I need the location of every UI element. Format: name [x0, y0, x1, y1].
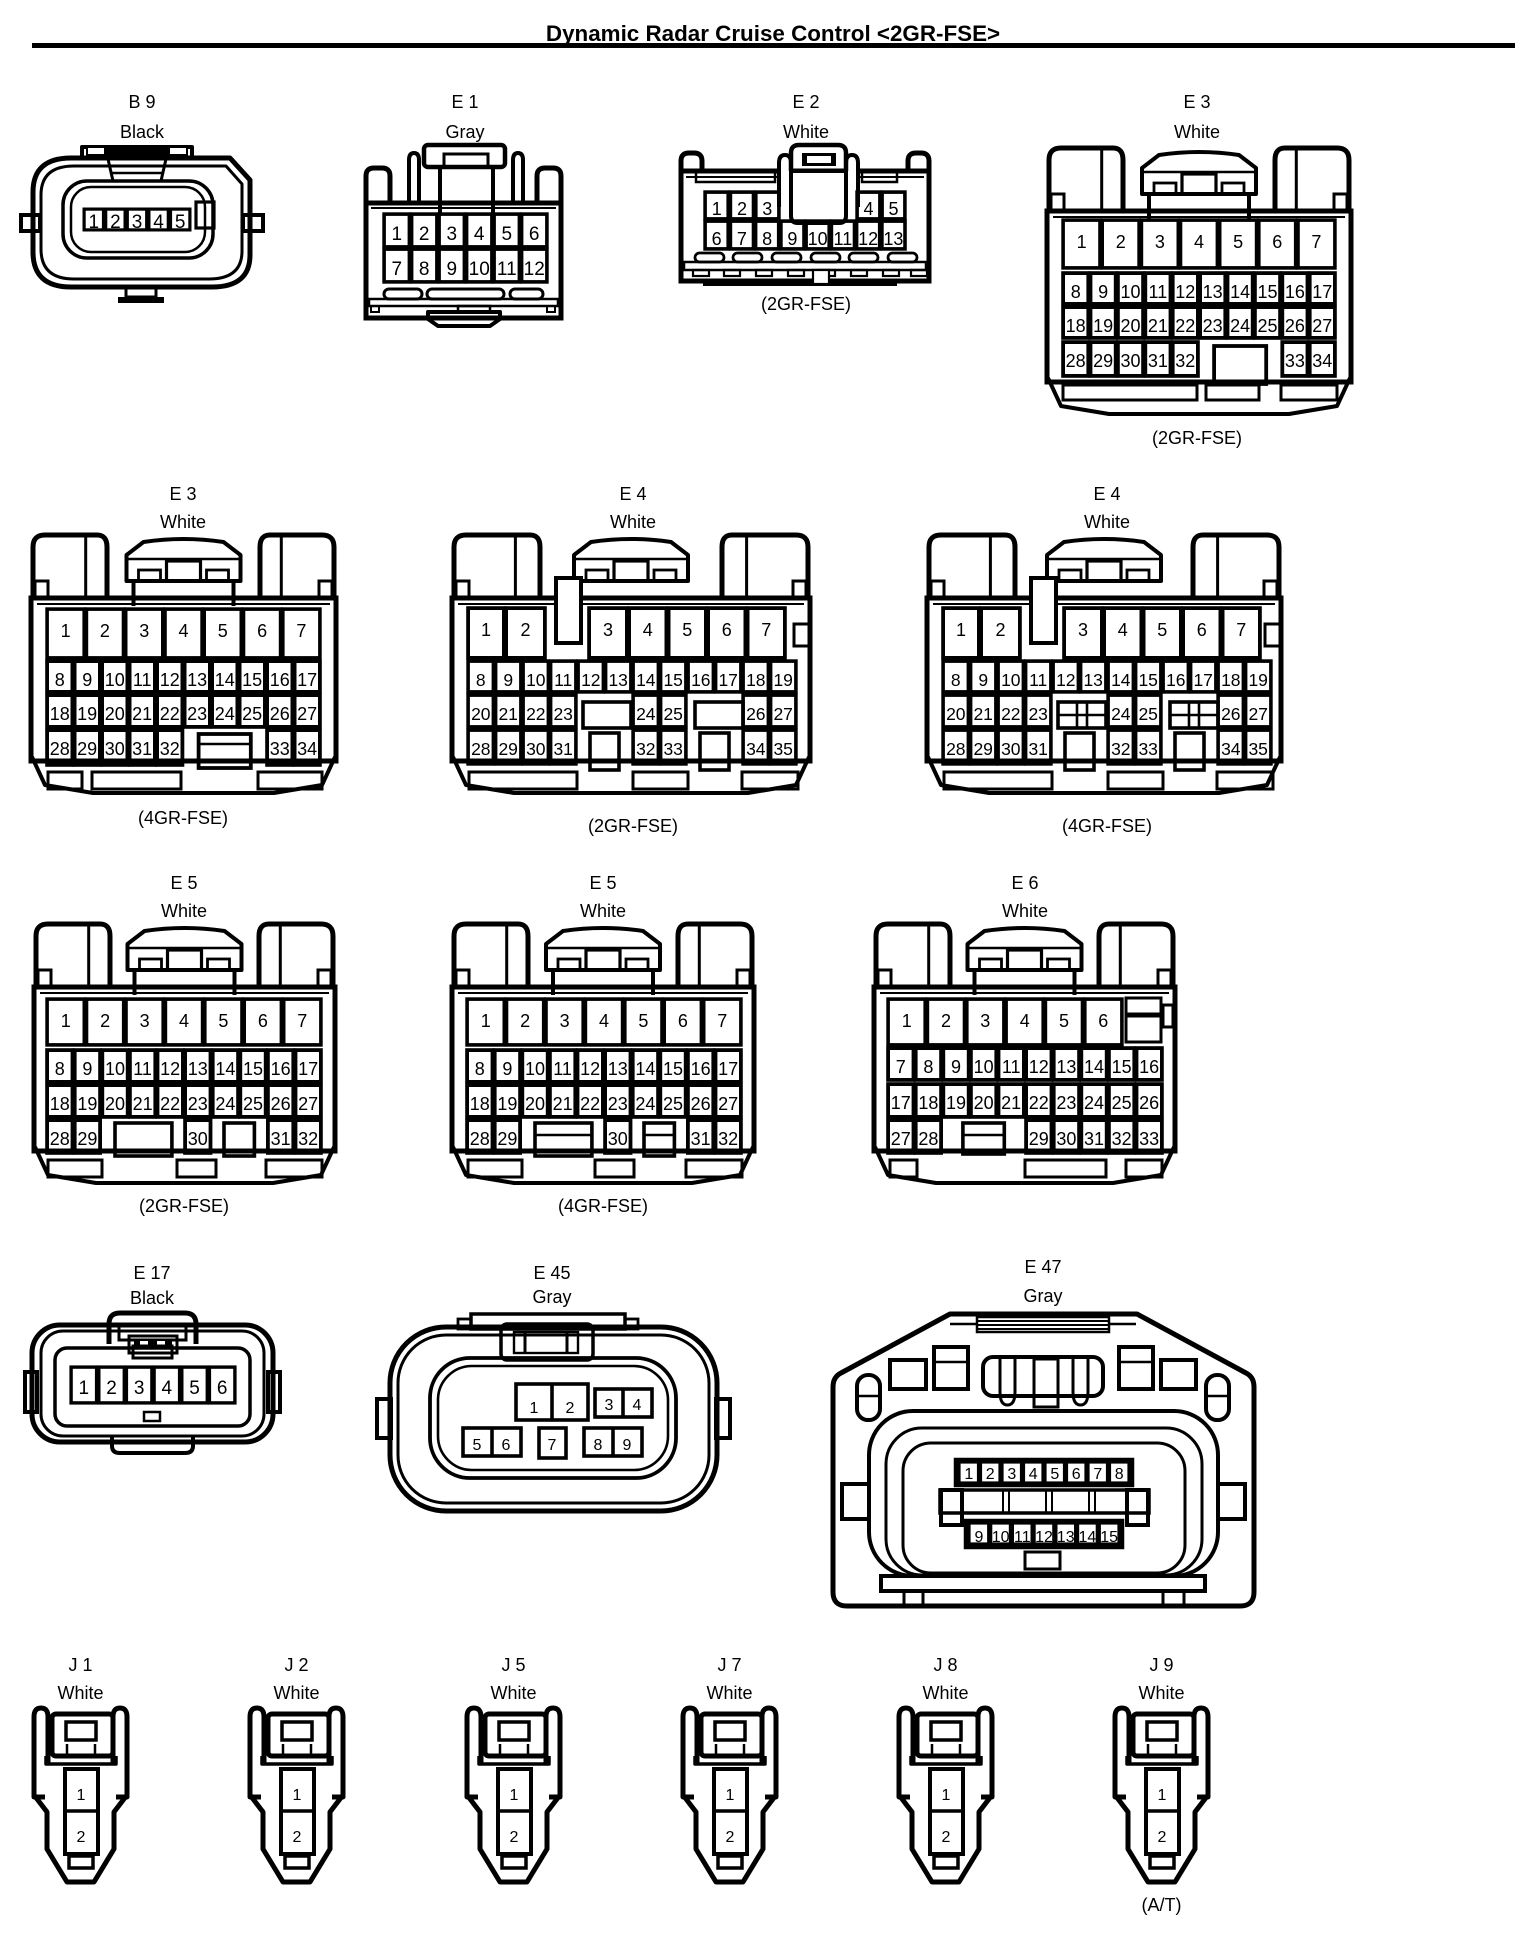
svg-text:12: 12: [858, 229, 878, 249]
svg-text:2: 2: [995, 620, 1005, 640]
svg-text:22: 22: [580, 1094, 600, 1114]
svg-text:Black: Black: [130, 1288, 175, 1308]
svg-text:32: 32: [160, 739, 180, 759]
svg-text:7: 7: [1093, 1466, 1102, 1483]
svg-text:8: 8: [419, 259, 430, 280]
svg-text:3: 3: [140, 1011, 150, 1031]
svg-text:30: 30: [1056, 1129, 1076, 1149]
svg-text:29: 29: [1093, 351, 1113, 371]
svg-text:White: White: [706, 1683, 752, 1703]
svg-text:33: 33: [1138, 739, 1157, 759]
svg-text:12: 12: [160, 670, 180, 690]
svg-text:13: 13: [187, 670, 207, 690]
svg-text:22: 22: [160, 704, 180, 724]
svg-text:1: 1: [942, 1787, 951, 1804]
svg-text:1: 1: [293, 1787, 302, 1804]
svg-text:J 8: J 8: [933, 1655, 957, 1675]
svg-text:4: 4: [863, 199, 873, 219]
svg-text:21: 21: [1148, 316, 1168, 336]
svg-text:E 4: E 4: [1093, 484, 1120, 504]
svg-text:White: White: [160, 512, 206, 532]
svg-text:White: White: [580, 901, 626, 921]
svg-text:10: 10: [469, 259, 490, 280]
svg-text:21: 21: [133, 1094, 153, 1114]
svg-text:18: 18: [470, 1094, 490, 1114]
svg-text:16: 16: [691, 670, 710, 690]
svg-text:21: 21: [132, 704, 152, 724]
svg-text:2: 2: [520, 620, 530, 640]
svg-text:(4GR-FSE): (4GR-FSE): [558, 1196, 648, 1216]
svg-text:23: 23: [188, 1094, 208, 1114]
svg-text:19: 19: [946, 1093, 966, 1113]
svg-text:8: 8: [594, 1437, 603, 1454]
svg-text:14: 14: [1084, 1057, 1104, 1077]
svg-text:7: 7: [297, 1011, 307, 1031]
svg-text:1: 1: [712, 199, 722, 219]
svg-text:5: 5: [1233, 232, 1243, 252]
svg-text:25: 25: [1257, 316, 1277, 336]
svg-text:35: 35: [773, 739, 792, 759]
svg-text:5: 5: [638, 1011, 648, 1031]
svg-text:7: 7: [296, 621, 306, 641]
svg-text:28: 28: [946, 739, 965, 759]
svg-text:24: 24: [1084, 1093, 1104, 1113]
svg-text:9: 9: [974, 1529, 983, 1546]
svg-text:6: 6: [217, 1378, 228, 1399]
svg-text:14: 14: [635, 1059, 655, 1079]
svg-text:31: 31: [691, 1129, 711, 1149]
svg-text:30: 30: [1120, 351, 1140, 371]
svg-text:30: 30: [1001, 739, 1021, 759]
svg-text:16: 16: [1139, 1057, 1159, 1077]
svg-text:10: 10: [1001, 670, 1021, 690]
svg-text:30: 30: [608, 1129, 628, 1149]
svg-text:10: 10: [526, 670, 546, 690]
svg-text:30: 30: [188, 1129, 208, 1149]
svg-text:29: 29: [1029, 1129, 1049, 1149]
svg-text:13: 13: [608, 1059, 628, 1079]
svg-text:E 5: E 5: [170, 873, 197, 893]
svg-text:17: 17: [891, 1093, 911, 1113]
svg-text:29: 29: [497, 1129, 517, 1149]
svg-text:12: 12: [1175, 282, 1195, 302]
svg-text:7: 7: [392, 259, 403, 280]
svg-text:6: 6: [712, 229, 722, 249]
svg-text:5: 5: [682, 620, 692, 640]
svg-text:34: 34: [1312, 351, 1332, 371]
svg-text:28: 28: [471, 739, 490, 759]
svg-text:12: 12: [581, 670, 600, 690]
svg-text:2: 2: [726, 1829, 735, 1846]
svg-text:22: 22: [526, 704, 545, 724]
svg-text:1: 1: [510, 1787, 519, 1804]
svg-text:3: 3: [762, 199, 772, 219]
svg-text:24: 24: [635, 1094, 655, 1114]
svg-text:(2GR-FSE): (2GR-FSE): [1152, 428, 1242, 448]
svg-text:4: 4: [599, 1011, 609, 1031]
svg-text:(2GR-FSE): (2GR-FSE): [588, 816, 678, 836]
svg-text:2: 2: [510, 1829, 519, 1846]
svg-text:5: 5: [502, 224, 513, 245]
svg-text:White: White: [610, 512, 656, 532]
svg-text:29: 29: [77, 1129, 97, 1149]
svg-text:25: 25: [663, 1094, 683, 1114]
svg-text:E 3: E 3: [1183, 92, 1210, 112]
svg-text:3: 3: [980, 1011, 990, 1031]
svg-text:14: 14: [1079, 1529, 1097, 1546]
svg-text:2: 2: [110, 212, 121, 233]
svg-text:2: 2: [941, 1011, 951, 1031]
svg-text:14: 14: [1230, 282, 1250, 302]
svg-text:9: 9: [978, 670, 988, 690]
svg-text:4: 4: [1029, 1466, 1038, 1483]
svg-text:6: 6: [502, 1437, 511, 1454]
svg-text:White: White: [490, 1683, 536, 1703]
svg-text:14: 14: [215, 1059, 235, 1079]
svg-text:1: 1: [392, 224, 403, 245]
svg-text:1: 1: [964, 1466, 973, 1483]
svg-text:B 9: B 9: [128, 92, 155, 112]
svg-text:14: 14: [1111, 670, 1131, 690]
svg-text:23: 23: [187, 704, 207, 724]
svg-text:32: 32: [1175, 351, 1195, 371]
svg-text:35: 35: [1248, 739, 1267, 759]
svg-text:1: 1: [61, 621, 71, 641]
svg-text:1: 1: [61, 1011, 71, 1031]
svg-text:32: 32: [1112, 1129, 1132, 1149]
svg-text:4: 4: [633, 1397, 642, 1414]
svg-text:11: 11: [133, 1059, 152, 1079]
svg-text:1: 1: [726, 1787, 735, 1804]
svg-text:23: 23: [553, 704, 572, 724]
svg-text:11: 11: [1002, 1057, 1021, 1077]
svg-text:23: 23: [1028, 704, 1047, 724]
svg-text:12: 12: [1056, 670, 1075, 690]
svg-text:5: 5: [218, 621, 228, 641]
svg-text:White: White: [783, 122, 829, 142]
svg-text:9: 9: [503, 670, 513, 690]
svg-text:34: 34: [297, 739, 317, 759]
svg-text:White: White: [57, 1683, 103, 1703]
svg-text:22: 22: [160, 1094, 180, 1114]
svg-text:11: 11: [1149, 282, 1168, 302]
svg-text:E 3: E 3: [169, 484, 196, 504]
svg-text:19: 19: [77, 704, 97, 724]
svg-text:15: 15: [1138, 670, 1157, 690]
svg-text:J 5: J 5: [501, 1655, 525, 1675]
svg-text:8: 8: [951, 670, 961, 690]
svg-text:11: 11: [553, 1059, 572, 1079]
svg-text:9: 9: [951, 1057, 961, 1077]
svg-text:29: 29: [77, 739, 97, 759]
svg-text:31: 31: [553, 739, 572, 759]
svg-text:29: 29: [973, 739, 992, 759]
svg-text:22: 22: [1001, 704, 1020, 724]
svg-text:3: 3: [139, 621, 149, 641]
svg-text:3: 3: [605, 1397, 614, 1414]
svg-text:27: 27: [298, 1094, 318, 1114]
svg-text:7: 7: [896, 1057, 906, 1077]
svg-text:3: 3: [603, 620, 613, 640]
svg-text:20: 20: [105, 704, 125, 724]
svg-text:Gray: Gray: [445, 122, 484, 142]
svg-text:7: 7: [717, 1011, 727, 1031]
svg-text:31: 31: [1148, 351, 1168, 371]
svg-text:Gray: Gray: [532, 1287, 571, 1307]
svg-text:17: 17: [1312, 282, 1332, 302]
svg-text:14: 14: [636, 670, 656, 690]
svg-text:6: 6: [258, 1011, 268, 1031]
svg-text:4: 4: [179, 1011, 189, 1031]
svg-text:23: 23: [1056, 1093, 1076, 1113]
svg-text:8: 8: [762, 229, 772, 249]
svg-text:17: 17: [298, 1059, 318, 1079]
svg-text:26: 26: [1139, 1093, 1159, 1113]
svg-text:25: 25: [1112, 1093, 1132, 1113]
svg-text:16: 16: [1285, 282, 1305, 302]
svg-text:26: 26: [691, 1094, 711, 1114]
svg-text:24: 24: [1111, 704, 1131, 724]
svg-text:10: 10: [808, 229, 828, 249]
svg-text:10: 10: [974, 1057, 994, 1077]
svg-text:11: 11: [554, 670, 572, 690]
svg-text:10: 10: [105, 1059, 125, 1079]
svg-text:30: 30: [105, 739, 125, 759]
svg-text:6: 6: [678, 1011, 688, 1031]
svg-text:15: 15: [243, 1059, 263, 1079]
svg-text:8: 8: [475, 1059, 485, 1079]
svg-text:19: 19: [77, 1094, 97, 1114]
svg-text:1: 1: [77, 1787, 86, 1804]
svg-text:14: 14: [215, 670, 235, 690]
svg-text:33: 33: [270, 739, 290, 759]
svg-text:12: 12: [160, 1059, 180, 1079]
svg-text:12: 12: [524, 259, 545, 280]
svg-text:12: 12: [1035, 1529, 1053, 1546]
svg-text:33: 33: [663, 739, 682, 759]
svg-text:19: 19: [773, 670, 792, 690]
svg-text:(4GR-FSE): (4GR-FSE): [1062, 816, 1152, 836]
svg-text:20: 20: [946, 704, 966, 724]
svg-text:33: 33: [1139, 1129, 1159, 1149]
svg-text:20: 20: [525, 1094, 545, 1114]
svg-text:2: 2: [566, 1400, 575, 1417]
svg-text:4: 4: [1194, 232, 1204, 252]
svg-text:1: 1: [89, 212, 100, 233]
svg-text:22: 22: [1029, 1093, 1049, 1113]
svg-text:32: 32: [298, 1129, 318, 1149]
svg-text:1: 1: [1077, 232, 1087, 252]
svg-text:10: 10: [992, 1529, 1010, 1546]
svg-text:1: 1: [481, 620, 491, 640]
svg-text:28: 28: [1066, 351, 1086, 371]
svg-text:White: White: [922, 1683, 968, 1703]
svg-text:2: 2: [100, 621, 110, 641]
svg-text:25: 25: [242, 704, 262, 724]
svg-text:10: 10: [1120, 282, 1140, 302]
svg-text:3: 3: [1155, 232, 1165, 252]
svg-text:4: 4: [178, 621, 188, 641]
svg-text:7: 7: [761, 620, 771, 640]
svg-text:1: 1: [956, 620, 966, 640]
svg-text:20: 20: [105, 1094, 125, 1114]
svg-text:3: 3: [1078, 620, 1088, 640]
svg-text:34: 34: [1221, 739, 1241, 759]
svg-text:4: 4: [1020, 1011, 1030, 1031]
svg-text:2: 2: [293, 1829, 302, 1846]
svg-text:13: 13: [1057, 1529, 1075, 1546]
svg-text:5: 5: [1157, 620, 1167, 640]
svg-text:10: 10: [525, 1059, 545, 1079]
svg-text:8: 8: [1115, 1466, 1124, 1483]
svg-text:10: 10: [105, 670, 125, 690]
svg-text:Gray: Gray: [1023, 1286, 1062, 1306]
svg-text:4: 4: [162, 1378, 173, 1399]
svg-text:24: 24: [636, 704, 656, 724]
svg-text:2: 2: [77, 1829, 86, 1846]
svg-text:13: 13: [1203, 282, 1223, 302]
svg-text:3: 3: [447, 224, 458, 245]
svg-text:28: 28: [918, 1129, 938, 1149]
svg-text:6: 6: [1272, 232, 1282, 252]
svg-text:28: 28: [470, 1129, 490, 1149]
svg-text:13: 13: [608, 670, 627, 690]
svg-text:11: 11: [1029, 670, 1047, 690]
svg-text:21: 21: [973, 704, 992, 724]
svg-text:5: 5: [189, 1378, 200, 1399]
svg-text:White: White: [1138, 1683, 1184, 1703]
svg-text:27: 27: [297, 704, 317, 724]
svg-text:5: 5: [1059, 1011, 1069, 1031]
svg-text:8: 8: [923, 1057, 933, 1077]
svg-text:8: 8: [1071, 282, 1081, 302]
svg-text:Black: Black: [120, 122, 165, 142]
svg-text:1: 1: [902, 1011, 912, 1031]
svg-text:11: 11: [497, 259, 517, 280]
svg-text:E 6: E 6: [1011, 873, 1038, 893]
svg-text:E 17: E 17: [133, 1263, 170, 1283]
svg-text:7: 7: [1236, 620, 1246, 640]
svg-text:13: 13: [1083, 670, 1102, 690]
svg-text:26: 26: [271, 1094, 291, 1114]
svg-text:8: 8: [476, 670, 486, 690]
svg-text:3: 3: [1007, 1466, 1016, 1483]
svg-text:31: 31: [1084, 1129, 1104, 1149]
svg-text:16: 16: [1166, 670, 1185, 690]
svg-text:2: 2: [106, 1378, 117, 1399]
svg-text:E 47: E 47: [1024, 1257, 1061, 1277]
svg-text:18: 18: [50, 1094, 70, 1114]
svg-text:7: 7: [737, 229, 747, 249]
svg-text:White: White: [273, 1683, 319, 1703]
svg-text:27: 27: [718, 1094, 738, 1114]
svg-text:J 2: J 2: [284, 1655, 308, 1675]
svg-text:(A/T): (A/T): [1142, 1895, 1182, 1915]
svg-text:White: White: [1084, 512, 1130, 532]
svg-text:18: 18: [918, 1093, 938, 1113]
svg-text:White: White: [1002, 901, 1048, 921]
svg-text:17: 17: [718, 670, 737, 690]
svg-text:33: 33: [1285, 351, 1305, 371]
svg-text:9: 9: [82, 670, 92, 690]
svg-text:12: 12: [1029, 1057, 1049, 1077]
svg-text:E 5: E 5: [589, 873, 616, 893]
svg-text:5: 5: [473, 1437, 482, 1454]
svg-text:13: 13: [188, 1059, 208, 1079]
svg-text:27: 27: [1248, 704, 1267, 724]
svg-text:8: 8: [55, 1059, 65, 1079]
svg-text:23: 23: [608, 1094, 628, 1114]
svg-text:6: 6: [1072, 1466, 1081, 1483]
svg-text:12: 12: [580, 1059, 600, 1079]
svg-text:2: 2: [100, 1011, 110, 1031]
svg-text:13: 13: [883, 229, 903, 249]
svg-text:15: 15: [1257, 282, 1277, 302]
svg-text:18: 18: [50, 704, 70, 724]
svg-text:16: 16: [691, 1059, 711, 1079]
svg-text:20: 20: [471, 704, 491, 724]
svg-text:19: 19: [1093, 316, 1113, 336]
svg-text:5: 5: [218, 1011, 228, 1031]
svg-text:27: 27: [773, 704, 792, 724]
svg-text:11: 11: [133, 670, 152, 690]
svg-text:9: 9: [82, 1059, 92, 1079]
svg-text:2: 2: [520, 1011, 530, 1031]
svg-text:White: White: [161, 901, 207, 921]
svg-text:31: 31: [132, 739, 152, 759]
svg-text:21: 21: [1001, 1093, 1021, 1113]
svg-text:23: 23: [1203, 316, 1223, 336]
svg-text:11: 11: [834, 229, 853, 249]
svg-text:25: 25: [663, 704, 682, 724]
svg-text:E 1: E 1: [451, 92, 478, 112]
svg-text:16: 16: [271, 1059, 291, 1079]
svg-text:5: 5: [1050, 1466, 1059, 1483]
svg-text:32: 32: [636, 739, 655, 759]
svg-text:28: 28: [50, 739, 70, 759]
svg-text:21: 21: [553, 1094, 573, 1114]
svg-text:26: 26: [1285, 316, 1305, 336]
svg-text:2: 2: [419, 224, 430, 245]
svg-text:1: 1: [530, 1400, 539, 1417]
svg-text:31: 31: [1028, 739, 1047, 759]
svg-text:Dynamic Radar Cruise Control <: Dynamic Radar Cruise Control <2GR-FSE>: [546, 21, 1000, 46]
svg-text:22: 22: [1175, 316, 1195, 336]
svg-text:3: 3: [132, 212, 143, 233]
svg-text:2: 2: [986, 1466, 995, 1483]
svg-text:4: 4: [643, 620, 653, 640]
svg-text:4: 4: [474, 224, 485, 245]
svg-text:7: 7: [1311, 232, 1321, 252]
svg-text:6: 6: [257, 621, 267, 641]
svg-text:J 9: J 9: [1149, 1655, 1173, 1675]
svg-text:7: 7: [548, 1437, 557, 1454]
svg-text:31: 31: [271, 1129, 291, 1149]
svg-text:4: 4: [1118, 620, 1128, 640]
svg-text:27: 27: [1312, 316, 1332, 336]
svg-text:9: 9: [623, 1437, 632, 1454]
svg-text:19: 19: [497, 1094, 517, 1114]
svg-text:3: 3: [560, 1011, 570, 1031]
svg-text:26: 26: [1221, 704, 1240, 724]
svg-text:6: 6: [722, 620, 732, 640]
svg-text:5: 5: [888, 199, 898, 219]
svg-text:15: 15: [242, 670, 262, 690]
svg-text:6: 6: [529, 224, 540, 245]
svg-text:9: 9: [1098, 282, 1108, 302]
svg-text:18: 18: [1221, 670, 1240, 690]
svg-text:(2GR-FSE): (2GR-FSE): [139, 1196, 229, 1216]
